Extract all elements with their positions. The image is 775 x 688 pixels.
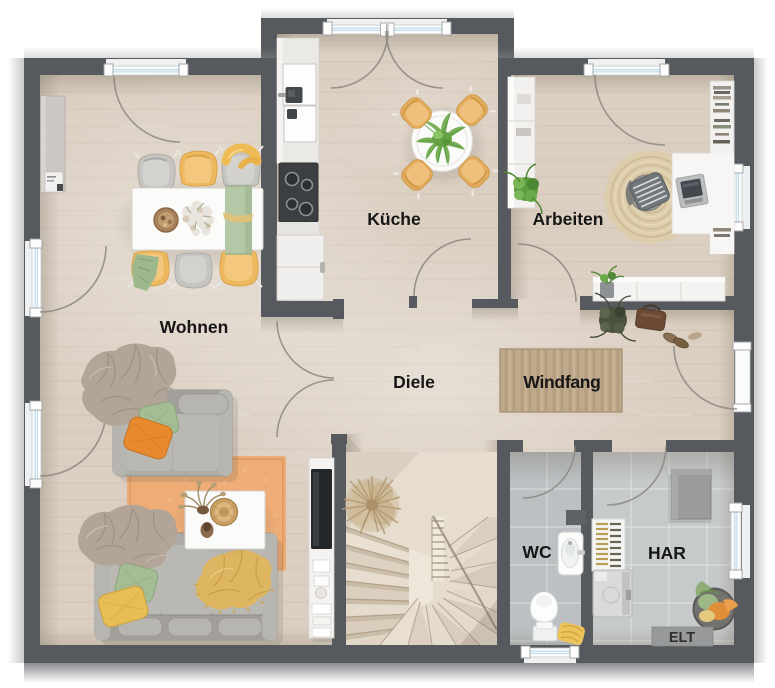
svg-text:ELT: ELT bbox=[669, 630, 695, 646]
svg-text:HAR: HAR bbox=[648, 543, 686, 563]
svg-text:WC: WC bbox=[522, 542, 552, 562]
svg-text:Küche: Küche bbox=[367, 209, 421, 229]
svg-text:Diele: Diele bbox=[393, 372, 435, 392]
svg-text:Windfang: Windfang bbox=[523, 372, 600, 392]
svg-text:Wohnen: Wohnen bbox=[160, 317, 229, 337]
svg-text:Arbeiten: Arbeiten bbox=[533, 209, 604, 229]
